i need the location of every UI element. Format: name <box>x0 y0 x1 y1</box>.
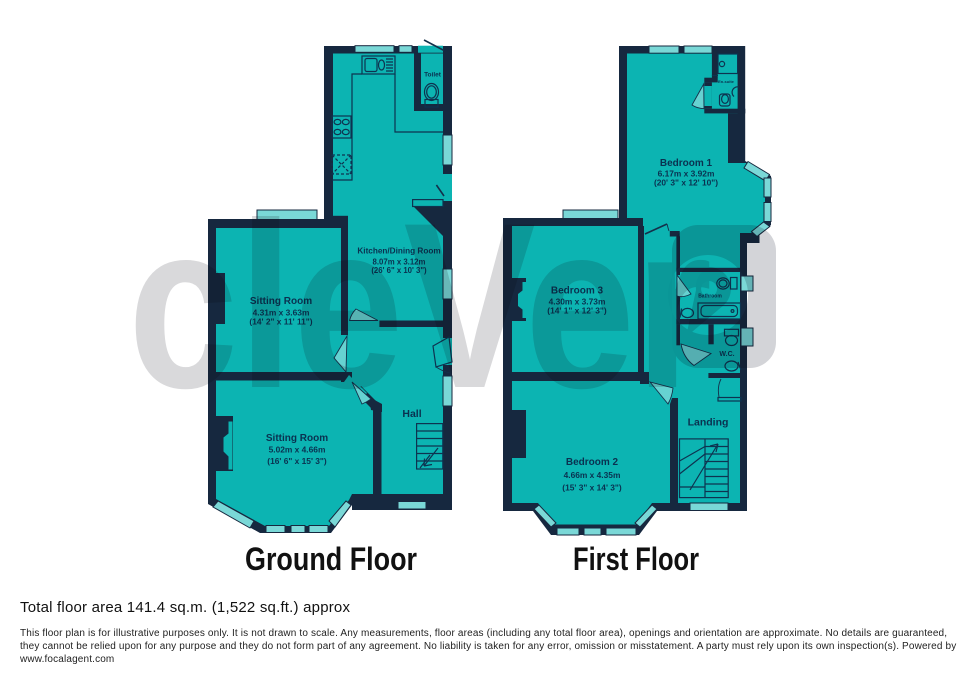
svg-text:5.02m x 4.66m: 5.02m x 4.66m <box>269 445 326 455</box>
svg-text:cleVer: cleVer <box>128 175 712 438</box>
svg-text:Toilet: Toilet <box>424 72 442 79</box>
svg-text:En-suite: En-suite <box>718 79 735 84</box>
svg-text:(15' 3" x 14' 3"): (15' 3" x 14' 3") <box>562 483 622 493</box>
svg-text:Ground Floor: Ground Floor <box>245 541 417 577</box>
svg-text:First Floor: First Floor <box>573 541 699 577</box>
svg-text:Bedroom 1: Bedroom 1 <box>660 158 713 169</box>
svg-text:Bedroom 2: Bedroom 2 <box>566 457 619 468</box>
svg-text:4.66m x 4.35m: 4.66m x 4.35m <box>564 470 621 480</box>
svg-text:(16' 6" x 15' 3"): (16' 6" x 15' 3") <box>267 456 327 466</box>
